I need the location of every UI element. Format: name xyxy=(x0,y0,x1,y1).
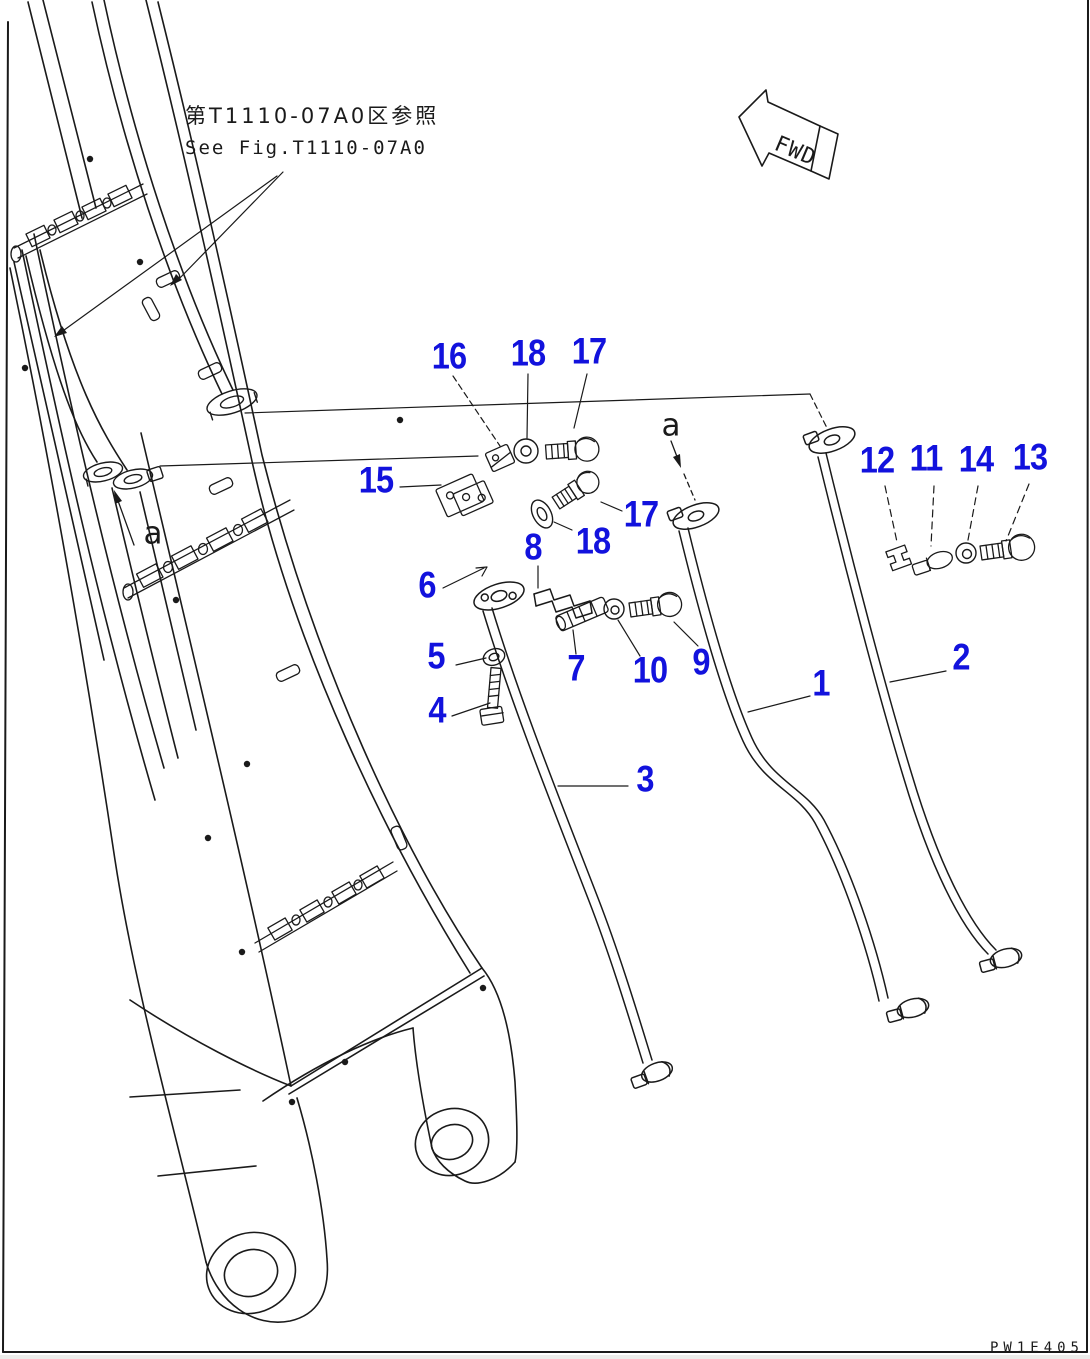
drawing-code: PW1E405 xyxy=(990,1340,1084,1356)
exploded-parts-drawing: FWD xyxy=(0,0,1090,1359)
right-boss xyxy=(406,1098,498,1185)
boom-bolt-dots xyxy=(22,156,486,1105)
bolt-9 xyxy=(628,591,683,622)
foot-weld-line xyxy=(130,1090,240,1097)
boom-tip-edge xyxy=(28,2,82,218)
boom-foot xyxy=(130,968,517,1326)
part-label-8: 8 xyxy=(524,529,541,566)
tube-3-elbow xyxy=(629,1058,676,1090)
part-label-6: 6 xyxy=(418,567,435,604)
part-label-18: 18 xyxy=(511,335,545,372)
left-boss xyxy=(195,1220,307,1326)
foot-weld-line xyxy=(158,1166,256,1176)
boom-fold-line xyxy=(141,433,291,1086)
section-label-a-right: a xyxy=(662,411,681,442)
fwd-arrow: FWD xyxy=(739,90,838,179)
leader-18a xyxy=(527,374,528,438)
part-label-17b: 17 xyxy=(624,496,658,533)
clamp-7 xyxy=(554,596,609,631)
part-label-13: 13 xyxy=(1013,439,1047,476)
boom-top-tube xyxy=(104,0,233,390)
reference-note-japanese: 第T1110-07A0区参照 xyxy=(185,100,439,130)
leader-18b xyxy=(554,522,572,530)
page-border xyxy=(3,0,1088,1352)
leader-16 xyxy=(453,376,500,446)
bolt-13 xyxy=(979,533,1036,566)
clamp-assembly-lower xyxy=(255,862,397,952)
leader-long-mid xyxy=(160,456,478,466)
part-label-11: 11 xyxy=(910,440,943,477)
boom-left-edge xyxy=(34,234,164,768)
part-label-14: 14 xyxy=(959,441,993,478)
bolt-17b xyxy=(550,467,603,512)
reference-note: 第T1110-07A0区参照 See Fig.T1110-07A0 xyxy=(185,100,439,159)
leader-1 xyxy=(748,696,810,712)
scan-edge xyxy=(0,1355,1090,1359)
part-label-12: 12 xyxy=(860,442,894,479)
part-label-17: 17 xyxy=(572,333,606,370)
leader-13 xyxy=(1006,484,1029,541)
section-label-a-left: a xyxy=(144,519,163,550)
part-label-4: 4 xyxy=(428,692,445,729)
clamp-15 xyxy=(436,470,494,521)
reference-note-arrows xyxy=(54,172,283,337)
part-label-3: 3 xyxy=(636,761,653,798)
tube-1-flange xyxy=(667,495,723,536)
boom-left-edge xyxy=(22,250,155,800)
tube-3-flange xyxy=(471,577,528,616)
part-label-5: 5 xyxy=(427,638,444,675)
part-label-7: 7 xyxy=(567,650,584,687)
boom-slots xyxy=(141,269,408,851)
washer-18a xyxy=(514,439,538,463)
reference-note-english: See Fig.T1110-07A0 xyxy=(185,137,439,159)
leader-14 xyxy=(968,486,978,540)
leader-17b xyxy=(601,502,622,511)
leader-11 xyxy=(931,486,934,546)
washer-10 xyxy=(604,599,624,619)
leader-6 xyxy=(443,568,484,588)
clamp-16 xyxy=(485,444,515,472)
tube-1 xyxy=(667,495,931,1024)
bolt-17a xyxy=(545,436,600,464)
fwd-arrow-label: FWD xyxy=(771,132,820,172)
part-label-16: 16 xyxy=(432,338,466,375)
part-label-2: 2 xyxy=(952,639,969,676)
boom-left-silhouette xyxy=(10,268,206,1262)
leader-5 xyxy=(456,658,486,665)
tube-2-flange xyxy=(803,419,859,460)
tube-1-elbow xyxy=(885,995,931,1024)
leader-15 xyxy=(400,485,441,487)
part-label-18b: 18 xyxy=(576,523,610,560)
part-label-9: 9 xyxy=(692,644,709,681)
leader-2 xyxy=(890,671,946,682)
left-lug-outline xyxy=(206,1098,327,1322)
leader-12 xyxy=(885,486,897,542)
leader-long-top-drop xyxy=(810,394,828,430)
washer-5 xyxy=(481,646,507,669)
washer-14 xyxy=(956,543,976,563)
part-label-10: 10 xyxy=(633,652,667,689)
boom-tip-edge xyxy=(43,0,96,208)
clamp-assembly-upper xyxy=(11,184,147,262)
clip-12 xyxy=(886,545,912,571)
parts-diagram-page: FWD 第T1110-07A0区参照 See Fig.T1110-07A0 16… xyxy=(0,0,1090,1359)
leader-lines xyxy=(160,374,1029,786)
section-a-arrow-right xyxy=(671,441,695,500)
tube-2 xyxy=(803,419,1024,974)
elbow-11 xyxy=(911,549,955,577)
part-label-15: 15 xyxy=(359,462,393,499)
part-label-1: 1 xyxy=(812,665,829,702)
boom-structure xyxy=(10,0,482,1262)
